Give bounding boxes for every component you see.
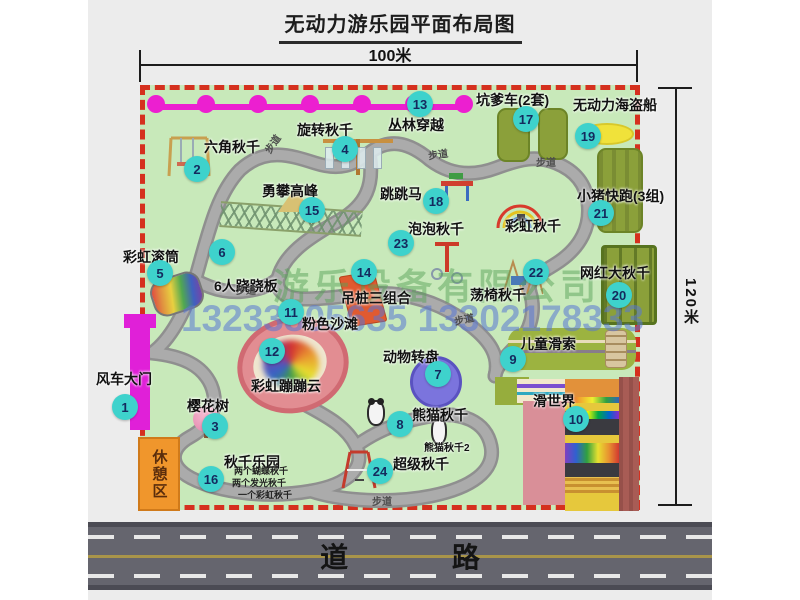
jungle-dot — [301, 95, 319, 113]
attraction-marker-4[interactable]: 4 — [332, 136, 358, 162]
road-edge-top — [88, 522, 712, 527]
slide-world-wall-icon — [619, 377, 639, 511]
rainbow-swing-icon — [490, 182, 560, 232]
page: 无动力游乐园平面布局图 100米 120米 — [0, 0, 800, 600]
attraction-marker-12[interactable]: 12 — [259, 338, 285, 364]
title-wrap: 无动力游乐园平面布局图 — [88, 8, 712, 44]
watermark-phone: 13233805635 13302178333 — [181, 298, 644, 340]
plan-sheet: 无动力游乐园平面布局图 100米 120米 — [88, 0, 712, 600]
attraction-marker-2[interactable]: 2 — [184, 156, 210, 182]
attraction-marker-11[interactable]: 11 — [278, 299, 304, 325]
jungle-dot — [249, 95, 267, 113]
attraction-marker-20[interactable]: 20 — [606, 282, 632, 308]
attraction-marker-21[interactable]: 21 — [588, 200, 614, 226]
bubble-swing-arm-icon — [435, 242, 459, 246]
road: 道 路 — [88, 522, 712, 590]
panda-swing-2-icon — [431, 417, 447, 445]
jungle-dot — [455, 95, 473, 113]
attraction-marker-18[interactable]: 18 — [423, 188, 449, 214]
dimension-tick-top-right — [636, 50, 638, 82]
attraction-marker-16[interactable]: 16 — [198, 466, 224, 492]
attraction-marker-19[interactable]: 19 — [575, 123, 601, 149]
dimension-tick-top-left — [139, 50, 141, 82]
attraction-marker-15[interactable]: 15 — [299, 197, 325, 223]
attraction-marker-22[interactable]: 22 — [523, 259, 549, 285]
kart-track-2-icon — [538, 108, 568, 160]
attraction-marker-7[interactable]: 7 — [425, 361, 451, 387]
rotating-swing-seat-icon — [373, 147, 382, 169]
dimension-line-right — [675, 88, 677, 505]
jungle-dot — [197, 95, 215, 113]
attraction-marker-10[interactable]: 10 — [563, 406, 589, 432]
dimension-height-label: 120米 — [680, 278, 701, 326]
jungle-dot — [353, 95, 371, 113]
jungle-dot — [147, 95, 165, 113]
attraction-marker-5[interactable]: 5 — [147, 260, 173, 286]
attraction-marker-14[interactable]: 14 — [351, 259, 377, 285]
attraction-marker-8[interactable]: 8 — [387, 411, 413, 437]
attraction-marker-13[interactable]: 13 — [407, 91, 433, 117]
attraction-marker-1[interactable]: 1 — [112, 394, 138, 420]
attraction-marker-6[interactable]: 6 — [209, 239, 235, 265]
attraction-marker-3[interactable]: 3 — [202, 413, 228, 439]
rest-area: 休憩区 — [138, 437, 180, 511]
attraction-marker-23[interactable]: 23 — [388, 230, 414, 256]
attraction-marker-17[interactable]: 17 — [513, 106, 539, 132]
park-map: 游乐设备有限公司 13233805635 13302178333 — [140, 85, 640, 510]
dimension-tick-right-bottom — [658, 504, 692, 506]
slide-world-slides-icon — [565, 379, 620, 511]
page-title: 无动力游乐园平面布局图 — [279, 8, 522, 44]
rest-area-label: 休憩区 — [149, 449, 170, 500]
slide-world-pink-column-icon — [523, 401, 567, 505]
road-label: 道 路 — [88, 536, 712, 576]
panda-swing-icon — [367, 400, 385, 426]
rotating-swing-seat-icon — [357, 147, 366, 169]
dimension-width-label: 100米 — [358, 42, 422, 66]
attraction-marker-24[interactable]: 24 — [367, 458, 393, 484]
road-edge-bottom — [88, 585, 712, 590]
attraction-marker-9[interactable]: 9 — [500, 346, 526, 372]
dimension-tick-right-top — [658, 87, 692, 89]
